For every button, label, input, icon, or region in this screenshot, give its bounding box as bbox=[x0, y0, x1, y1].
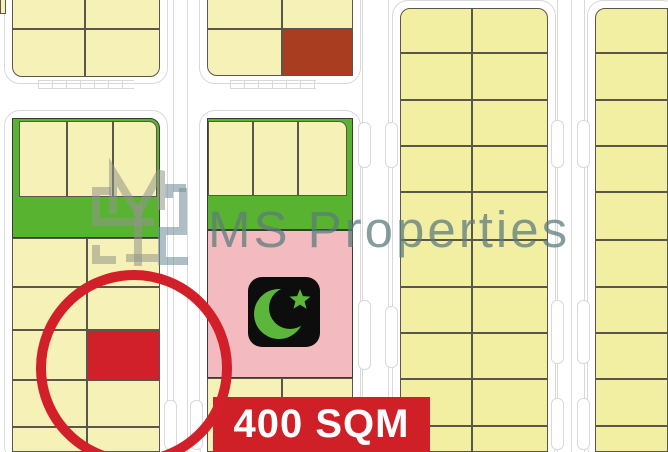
plot bbox=[595, 333, 668, 379]
plot bbox=[472, 426, 548, 452]
plot bbox=[400, 146, 472, 192]
plot bbox=[298, 121, 347, 196]
plot bbox=[400, 240, 472, 287]
plot bbox=[85, 29, 160, 77]
plot bbox=[207, 0, 282, 29]
plot bbox=[67, 121, 113, 197]
plot bbox=[282, 0, 353, 29]
plot bbox=[400, 333, 472, 379]
plot bbox=[0, 0, 6, 14]
plot bbox=[472, 100, 548, 146]
plot bbox=[400, 8, 472, 53]
highlight-circle bbox=[36, 270, 232, 452]
plot bbox=[595, 426, 668, 452]
plot bbox=[472, 8, 548, 53]
plot bbox=[85, 0, 160, 29]
plot bbox=[400, 53, 472, 100]
area-badge-label: 400 SQM bbox=[234, 402, 410, 447]
plot bbox=[472, 53, 548, 100]
plot bbox=[12, 238, 87, 287]
plot bbox=[208, 121, 253, 196]
plot bbox=[472, 240, 548, 287]
crescent-star-icon bbox=[248, 277, 320, 347]
plot bbox=[12, 0, 85, 29]
plot bbox=[595, 287, 668, 333]
plot bbox=[472, 146, 548, 192]
plot bbox=[595, 146, 668, 192]
plot bbox=[472, 333, 548, 379]
plot bbox=[400, 192, 472, 240]
plot bbox=[595, 100, 668, 146]
plot bbox=[595, 8, 668, 53]
plot bbox=[253, 121, 298, 196]
plot-map: MS Properties 400 SQM bbox=[0, 0, 668, 452]
plot bbox=[19, 121, 67, 197]
plot bbox=[472, 192, 548, 240]
plot bbox=[12, 29, 85, 77]
plot bbox=[113, 121, 157, 197]
plot bbox=[595, 53, 668, 100]
sold-plot bbox=[282, 29, 353, 76]
plot bbox=[595, 379, 668, 426]
plot bbox=[595, 240, 668, 287]
plot bbox=[400, 100, 472, 146]
plot bbox=[595, 192, 668, 240]
plot bbox=[472, 379, 548, 426]
plot bbox=[207, 29, 282, 76]
area-badge: 400 SQM bbox=[213, 397, 430, 452]
plot bbox=[400, 287, 472, 333]
plot bbox=[472, 287, 548, 333]
